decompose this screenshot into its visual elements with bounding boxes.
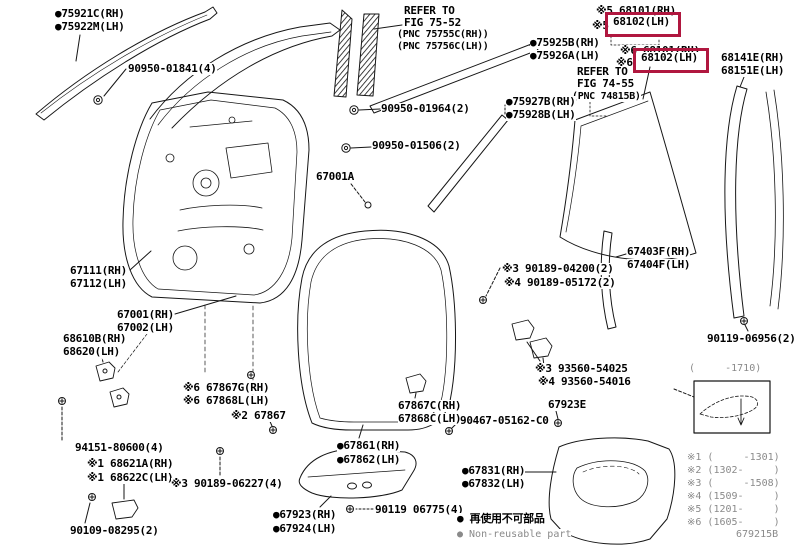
legend-entry-5: ※5 (1201- ) <box>687 504 780 515</box>
legend-entry-3: ※3 ( -1508) <box>687 478 780 489</box>
callout-67923e[interactable]: 67923E <box>548 399 586 411</box>
callout-90189-06227[interactable]: ※3 90189-06227(4) <box>171 478 283 490</box>
callout-67868l-lh[interactable]: ※6 67868L(LH) <box>183 395 269 407</box>
callout-67924-lh[interactable]: ●67924(LH) <box>273 523 336 535</box>
note-refer-fig7552-4: (PNC 75756C(LH)) <box>397 41 489 52</box>
note-refer-fig7552-3: (PNC 75755C(RH)) <box>397 29 489 40</box>
callout-67867c-rh[interactable]: 67867C(RH) <box>398 400 461 412</box>
callout-67001a[interactable]: 67001A <box>316 171 354 183</box>
callout-68151e-lh[interactable]: 68151E(LH) <box>721 65 784 77</box>
callout-75928b-lh[interactable]: ●75928B(LH) <box>506 109 576 121</box>
callout-67832-lh[interactable]: ●67832(LH) <box>462 478 525 490</box>
callout-67112-lh[interactable]: 67112(LH) <box>70 278 127 290</box>
callout-94151-80600[interactable]: 94151-80600(4) <box>75 442 164 454</box>
callout-67831-rh[interactable]: ●67831(RH) <box>462 465 525 477</box>
callout-90950-01506[interactable]: 90950-01506(2) <box>372 140 461 152</box>
legend-entry-2: ※2 (1302- ) <box>687 465 780 476</box>
callout-68621a-rh[interactable]: ※1 68621A(RH) <box>87 458 173 470</box>
callout-75921c-rh[interactable]: ●75921C(RH) <box>55 8 125 20</box>
callout-67403f-rh[interactable]: 67403F(RH) <box>627 246 690 258</box>
callout-90950-01964[interactable]: 90950-01964(2) <box>381 103 470 115</box>
door-inner-panel <box>123 92 309 402</box>
parts-diagram-stage: ●75921C(RH)●75922M(LH)90950-01841(4)REFE… <box>0 0 796 549</box>
callout-68622c-lh[interactable]: ※1 68622C(LH) <box>87 472 173 484</box>
callout-67001-rh[interactable]: 67001(RH) <box>117 309 174 321</box>
callout-75926a-lh[interactable]: ●75926A(LH) <box>530 50 600 62</box>
door-window-frame <box>150 23 345 128</box>
note-refer-fig7552-2: FIG 75-52 <box>404 17 461 29</box>
note-non-reusable-jp: ● 再使用不可部品 <box>457 513 545 525</box>
callout-90119-06775[interactable]: 90119 06775(4) <box>375 504 464 516</box>
figure-code: 679215B <box>736 529 778 540</box>
legend-entry-4: ※4 (1509- ) <box>687 491 780 502</box>
callout-68102-lh-1[interactable]: 68102(LH) <box>613 16 670 28</box>
callout-67923-rh[interactable]: ●67923(RH) <box>273 509 336 521</box>
callout-68102-lh-2[interactable]: 68102(LH) <box>641 52 698 64</box>
callout-90189-05172[interactable]: ※4 90189-05172(2) <box>504 277 616 289</box>
callout-67861-rh[interactable]: ●67861(RH) <box>337 440 400 452</box>
note-refer-fig7455-2: FIG 74-55 <box>577 78 634 90</box>
callout-67868c-lh[interactable]: 67868C(LH) <box>398 413 461 425</box>
callout-75922m-lh[interactable]: ●75922M(LH) <box>55 21 125 33</box>
note-non-reusable-en: ● Non-reusable part <box>457 529 571 540</box>
quarter-sash-strips <box>334 10 402 97</box>
callout-93560-54016[interactable]: ※4 93560-54016 <box>538 376 631 388</box>
callout-68620-lh[interactable]: 68620(LH) <box>63 346 120 358</box>
callout-67111-rh[interactable]: 67111(RH) <box>70 265 127 277</box>
callout-67867g-rh[interactable]: ※6 67867G(RH) <box>183 382 269 394</box>
note-refer-fig7455-3: (PNC 74815B) <box>572 91 641 102</box>
glass-run-channels <box>601 77 783 331</box>
callout-90189-04200[interactable]: ※3 90189-04200(2) <box>502 263 614 275</box>
legend-header-range: ( -1710) <box>689 363 761 374</box>
callout-93560-54025[interactable]: ※3 93560-54025 <box>535 363 628 375</box>
callout-67862-lh[interactable]: ●67862(LH) <box>337 454 400 466</box>
legend-entry-1: ※1 ( -1301) <box>687 452 780 463</box>
callout-68610b-rh[interactable]: 68610B(RH) <box>63 333 126 345</box>
legend-entry-6: ※6 (1605- ) <box>687 517 780 528</box>
callout-68102-mark-1: ※5 <box>592 20 609 32</box>
callout-75927b-rh[interactable]: ●75927B(RH) <box>506 96 576 108</box>
callout-90950-01841[interactable]: 90950-01841(4) <box>128 63 217 75</box>
inside-handle-inset <box>674 381 770 433</box>
callout-67867[interactable]: ※2 67867 <box>231 410 286 422</box>
callout-90109-08295[interactable]: 90109-08295(2) <box>70 525 159 537</box>
callout-67404f-lh[interactable]: 67404F(LH) <box>627 259 690 271</box>
callout-90467-05162[interactable]: 90467-05162-C0 <box>460 415 549 427</box>
callout-90119-06956[interactable]: 90119-06956(2) <box>707 333 796 345</box>
callout-68141e-rh[interactable]: 68141E(RH) <box>721 52 784 64</box>
callout-75925b-rh[interactable]: ●75925B(RH) <box>530 37 600 49</box>
